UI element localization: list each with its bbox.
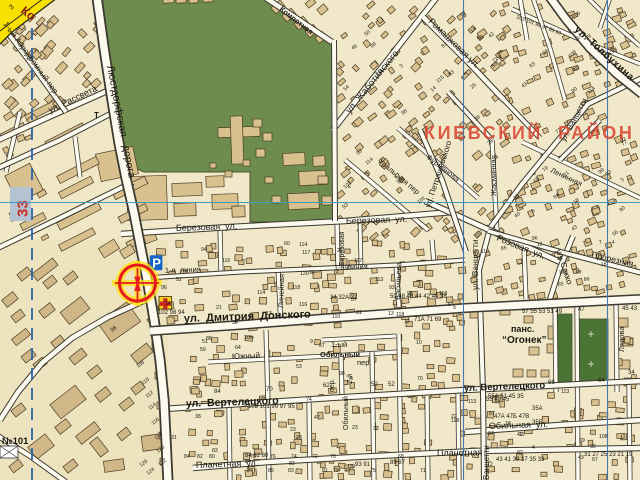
svg-text:120: 120: [300, 271, 309, 277]
svg-text:87: 87: [247, 468, 253, 474]
svg-text:пер.: пер.: [329, 378, 336, 392]
svg-text:113: 113: [468, 399, 476, 405]
svg-text:70: 70: [330, 454, 336, 460]
svg-text:“Огонек”: “Огонек”: [502, 335, 547, 346]
svg-text:65: 65: [557, 281, 564, 288]
svg-text:74: 74: [306, 397, 312, 403]
svg-text:96: 96: [161, 285, 167, 291]
svg-text:Березовая ул.: Березовая ул.: [176, 221, 238, 233]
svg-text:26: 26: [337, 248, 343, 254]
svg-text:118: 118: [292, 285, 300, 291]
svg-text:68: 68: [398, 454, 404, 460]
svg-text:59: 59: [200, 347, 206, 353]
svg-text:117: 117: [302, 250, 310, 256]
svg-text:93: 93: [389, 285, 395, 291]
svg-text:23: 23: [352, 425, 358, 431]
svg-text:47: 47: [578, 307, 585, 313]
svg-text:10: 10: [416, 340, 422, 346]
svg-text:2: 2: [336, 269, 339, 275]
svg-text:93 91: 93 91: [355, 462, 371, 468]
svg-text:79: 79: [333, 468, 339, 474]
svg-text:панс.: панс.: [511, 324, 534, 334]
svg-text:Обильный: Обильный: [320, 350, 360, 359]
svg-text:30: 30: [232, 320, 238, 326]
svg-text:98: 98: [339, 371, 345, 377]
svg-text:Планетная: Планетная: [437, 447, 483, 458]
svg-text:85: 85: [268, 468, 274, 474]
svg-text:57: 57: [319, 343, 325, 349]
svg-text:35А: 35А: [532, 406, 543, 412]
svg-text:84: 84: [244, 402, 250, 408]
svg-text:Т: Т: [94, 111, 99, 120]
svg-text:12: 12: [536, 241, 543, 248]
svg-text:1-ый: 1-ый: [331, 340, 347, 349]
svg-text:103 101 99 97 95: 103 101 99 97 95: [248, 404, 295, 410]
svg-text:113: 113: [561, 389, 569, 395]
svg-text:52: 52: [388, 382, 395, 388]
svg-text:№101: №101: [2, 436, 29, 447]
svg-text:118: 118: [396, 312, 404, 318]
svg-text:21: 21: [216, 305, 222, 311]
svg-text:13: 13: [266, 311, 272, 317]
svg-text:102 98 94: 102 98 94: [158, 310, 185, 316]
svg-text:84: 84: [214, 389, 221, 395]
svg-text:116: 116: [299, 302, 307, 308]
svg-text:57: 57: [351, 297, 357, 303]
svg-text:64: 64: [598, 378, 605, 384]
svg-text:119: 119: [347, 464, 355, 470]
svg-text:108: 108: [599, 434, 608, 440]
svg-text:23: 23: [290, 427, 296, 433]
svg-text:43 41 39 37 35 33: 43 41 39 37 35 33: [496, 457, 545, 463]
svg-text:Жасминная: Жасминная: [489, 155, 498, 196]
svg-text:95: 95: [407, 291, 413, 297]
svg-text:33: 33: [373, 426, 379, 432]
svg-text:9: 9: [310, 339, 313, 345]
svg-text:84: 84: [245, 459, 251, 465]
svg-text:35Б: 35Б: [532, 420, 543, 426]
svg-text:16: 16: [600, 261, 607, 268]
svg-text:83: 83: [212, 448, 218, 454]
svg-text:42: 42: [517, 432, 523, 438]
svg-text:118: 118: [439, 291, 447, 297]
svg-text:97: 97: [488, 431, 494, 437]
svg-text:94: 94: [201, 247, 207, 253]
svg-text:84: 84: [184, 454, 190, 460]
svg-text:ул. Ванцетти: ул. Ванцетти: [470, 239, 480, 290]
svg-text:66: 66: [345, 265, 351, 271]
svg-text:116: 116: [222, 258, 230, 264]
svg-text:59: 59: [575, 269, 582, 276]
svg-text:70: 70: [266, 387, 273, 393]
svg-text:60: 60: [284, 241, 290, 247]
svg-text:57 55 53 51 49: 57 55 53 51 49: [522, 309, 563, 315]
svg-text:13: 13: [556, 255, 563, 262]
svg-text:1: 1: [620, 435, 623, 441]
svg-text:14: 14: [165, 301, 171, 307]
svg-text:6: 6: [448, 302, 451, 308]
svg-text:66: 66: [548, 380, 555, 386]
svg-text:64: 64: [235, 345, 241, 351]
svg-text:43: 43: [578, 455, 584, 461]
svg-text:67: 67: [592, 457, 598, 463]
svg-text:4: 4: [532, 445, 535, 451]
svg-text:72: 72: [312, 454, 318, 460]
svg-text:55 49 45: 55 49 45: [486, 397, 510, 403]
svg-text:92: 92: [590, 444, 596, 450]
svg-text:12: 12: [487, 462, 493, 468]
svg-text:51: 51: [202, 339, 208, 345]
svg-text:Лядова: Лядова: [617, 326, 626, 352]
svg-text:65: 65: [500, 245, 507, 252]
svg-text:67: 67: [489, 411, 495, 417]
svg-text:81: 81: [322, 468, 328, 474]
svg-text:47А 47Б 47В: 47А 47Б 47В: [494, 414, 529, 420]
svg-text:70: 70: [417, 376, 423, 382]
svg-text:114: 114: [299, 242, 307, 248]
svg-text:КИЕВСКИЙ РАЙОН: КИЕВСКИЙ РАЙОН: [424, 122, 634, 143]
svg-text:109: 109: [244, 335, 253, 341]
svg-text:пер.: пер.: [357, 358, 372, 367]
svg-text:78: 78: [250, 454, 256, 460]
svg-text:4: 4: [350, 376, 353, 382]
svg-text:23: 23: [296, 435, 302, 441]
svg-text:89 87: 89 87: [390, 460, 406, 466]
svg-text:114: 114: [257, 290, 265, 296]
svg-text:86: 86: [583, 276, 590, 283]
svg-text:80: 80: [209, 454, 215, 460]
svg-text:47: 47: [314, 415, 320, 421]
svg-text:71А 71 69: 71А 71 69: [414, 317, 442, 323]
svg-text:69: 69: [579, 438, 585, 444]
svg-text:12: 12: [404, 319, 410, 325]
svg-text:110: 110: [332, 314, 340, 320]
svg-text:75: 75: [370, 468, 376, 474]
svg-text:38: 38: [195, 414, 201, 420]
svg-text:45 43: 45 43: [622, 306, 638, 312]
svg-text:50: 50: [371, 382, 378, 388]
svg-text:53: 53: [296, 364, 302, 370]
svg-text:31: 31: [356, 310, 362, 316]
svg-text:18: 18: [505, 421, 511, 427]
svg-text:83: 83: [288, 468, 294, 474]
svg-text:92: 92: [517, 450, 523, 456]
svg-text:62: 62: [323, 383, 330, 389]
svg-text:5: 5: [453, 305, 456, 311]
svg-text:82: 82: [197, 454, 203, 460]
svg-text:52: 52: [176, 277, 182, 283]
svg-text:117: 117: [354, 258, 362, 264]
svg-text:22: 22: [451, 414, 457, 420]
svg-text:113: 113: [375, 277, 383, 283]
svg-text:Южный: Южный: [232, 351, 260, 361]
svg-text:113: 113: [480, 248, 489, 255]
svg-text:Березовая ул.: Березовая ул.: [346, 214, 408, 226]
svg-text:71: 71: [420, 468, 426, 474]
svg-text:1-я линия: 1-я линия: [165, 265, 201, 275]
svg-text:31: 31: [171, 435, 177, 441]
svg-text:74: 74: [291, 454, 297, 460]
svg-text:90: 90: [309, 270, 315, 276]
svg-text:Обильный: Обильный: [342, 396, 350, 430]
svg-text:13: 13: [388, 311, 394, 317]
svg-text:102: 102: [558, 269, 568, 276]
svg-text:76: 76: [270, 454, 276, 460]
svg-text:83: 83: [289, 461, 295, 467]
svg-text:Линейная: Линейная: [276, 274, 286, 308]
svg-text:34: 34: [628, 370, 635, 376]
